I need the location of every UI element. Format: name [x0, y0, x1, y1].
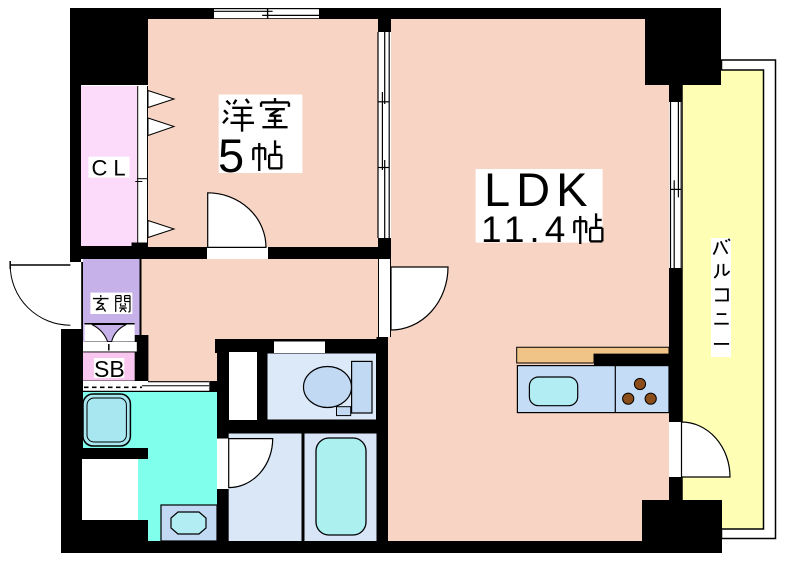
- svg-text:CL: CL: [92, 156, 132, 181]
- svg-text:11.4: 11.4: [481, 209, 570, 250]
- svg-text:5: 5: [218, 129, 244, 182]
- svg-text:SB: SB: [94, 356, 125, 382]
